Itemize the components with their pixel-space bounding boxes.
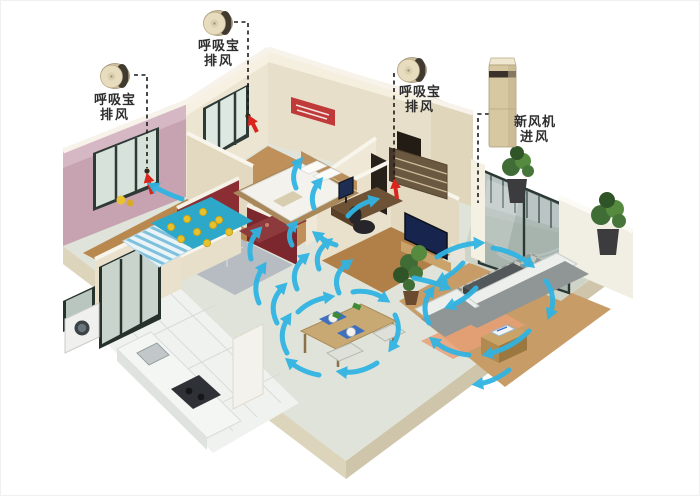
exhaust-label-1-line2: 排风 (83, 108, 147, 123)
entry-column (471, 159, 485, 263)
exhaust-label-3-line1: 呼吸宝 (388, 85, 452, 100)
fridge-cabinet (233, 324, 263, 409)
exhaust-label-2-line1: 呼吸宝 (187, 39, 251, 54)
exhaust-vent-dot-2 (245, 113, 250, 118)
intake-label-line1: 新风机 (505, 115, 565, 130)
intake-label-line2: 进风 (505, 130, 565, 145)
breather-device-3 (398, 58, 427, 83)
window-sill-toy (117, 196, 126, 205)
exhaust-label-3: 呼吸宝 排风 (388, 85, 452, 114)
floorplan-diagram: 呼吸宝 排风 呼吸宝 排风 呼吸宝 排风 新风机 进风 (0, 0, 700, 496)
intake-label: 新风机 进风 (505, 115, 565, 144)
exhaust-label-3-line2: 排风 (388, 100, 452, 115)
exhaust-vent-dot-1 (144, 168, 149, 173)
breather-device-2 (204, 11, 233, 36)
exhaust-label-2-line2: 排风 (187, 54, 251, 69)
exhaust-label-1: 呼吸宝 排风 (83, 93, 147, 122)
breather-device-1 (101, 64, 130, 89)
exhaust-label-1-line1: 呼吸宝 (83, 93, 147, 108)
apartment-scene (1, 1, 700, 496)
exhaust-label-2: 呼吸宝 排风 (187, 39, 251, 68)
